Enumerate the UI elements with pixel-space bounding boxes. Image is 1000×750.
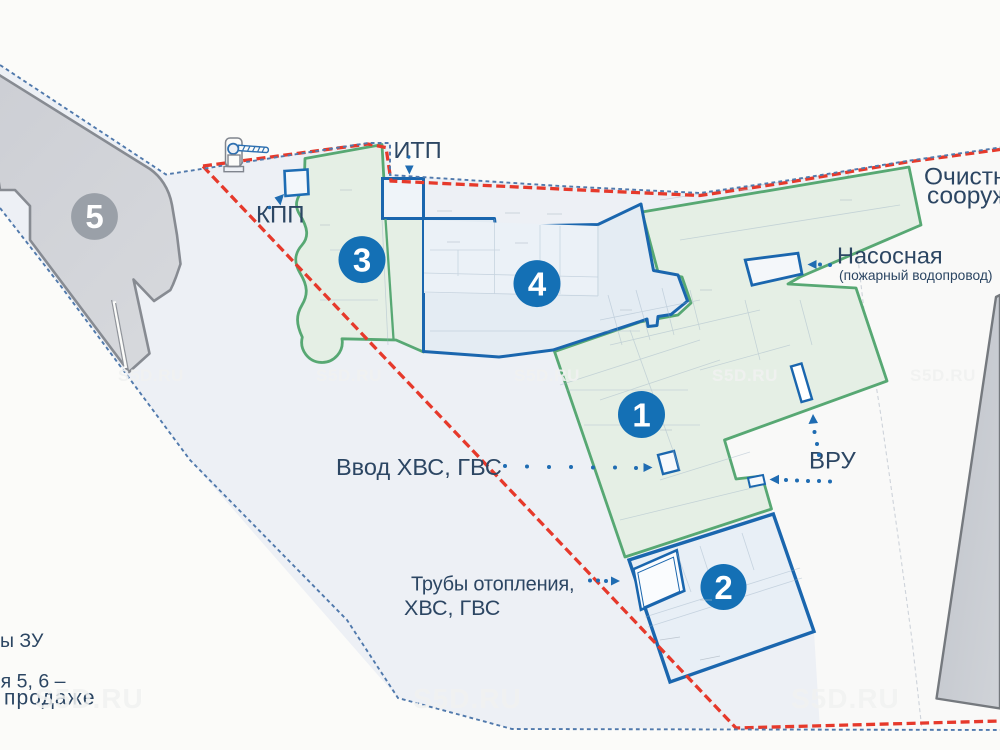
svg-text:(пожарный водопровод): (пожарный водопровод): [839, 268, 993, 283]
svg-text:S5D.RU: S5D.RU: [791, 683, 900, 714]
svg-text:S5D.RU: S5D.RU: [712, 366, 778, 385]
svg-text:ИТП: ИТП: [394, 137, 442, 163]
svg-text:ВРУ: ВРУ: [809, 448, 856, 475]
svg-text:S5D.RU: S5D.RU: [35, 683, 144, 714]
svg-text:4: 4: [528, 266, 547, 303]
svg-text:2: 2: [714, 569, 732, 606]
svg-text:Насосная: Насосная: [837, 243, 943, 269]
svg-text:1: 1: [632, 397, 650, 434]
svg-text:сооружения: сооружения: [927, 183, 1000, 210]
svg-text:КПП: КПП: [256, 202, 304, 229]
svg-text:S5D.RU: S5D.RU: [316, 366, 382, 385]
svg-text:5: 5: [85, 198, 103, 235]
svg-text:S5D.RU: S5D.RU: [514, 366, 580, 385]
svg-text:Трубы отопления,: Трубы отопления,: [411, 574, 574, 596]
svg-text:S5D.RU: S5D.RU: [413, 683, 522, 714]
svg-text:3: 3: [353, 242, 371, 279]
svg-text:Границы ЗУ: Границы ЗУ: [0, 630, 44, 652]
svg-text:S5D.RU: S5D.RU: [910, 366, 976, 385]
svg-text:S5D.RU: S5D.RU: [118, 366, 184, 385]
svg-text:ХВС, ГВС: ХВС, ГВС: [404, 596, 500, 620]
svg-text:Ввод ХВС, ГВС: Ввод ХВС, ГВС: [336, 454, 502, 480]
